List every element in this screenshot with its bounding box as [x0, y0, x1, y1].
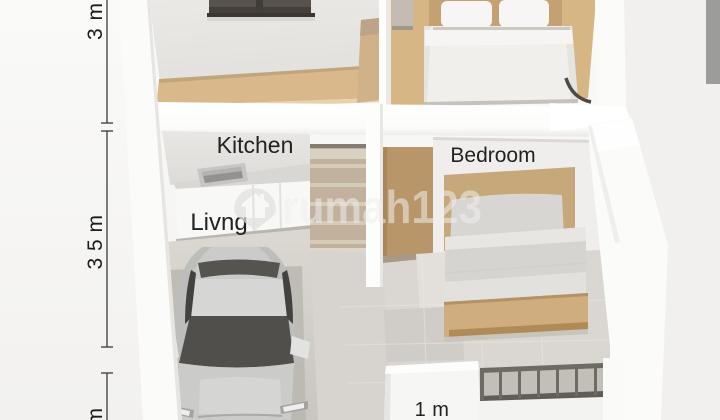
svg-text:Bedroom: Bedroom [450, 144, 535, 167]
svg-text:3 m: 3 m [84, 2, 107, 40]
svg-text:2 m: 2 m [84, 407, 107, 420]
svg-text:3 5 m: 3 5 m [84, 214, 107, 269]
svg-text:Kitchen: Kitchen [217, 132, 294, 158]
svg-text:rumah123: rumah123 [282, 181, 482, 233]
svg-text:1 m: 1 m [415, 399, 450, 420]
